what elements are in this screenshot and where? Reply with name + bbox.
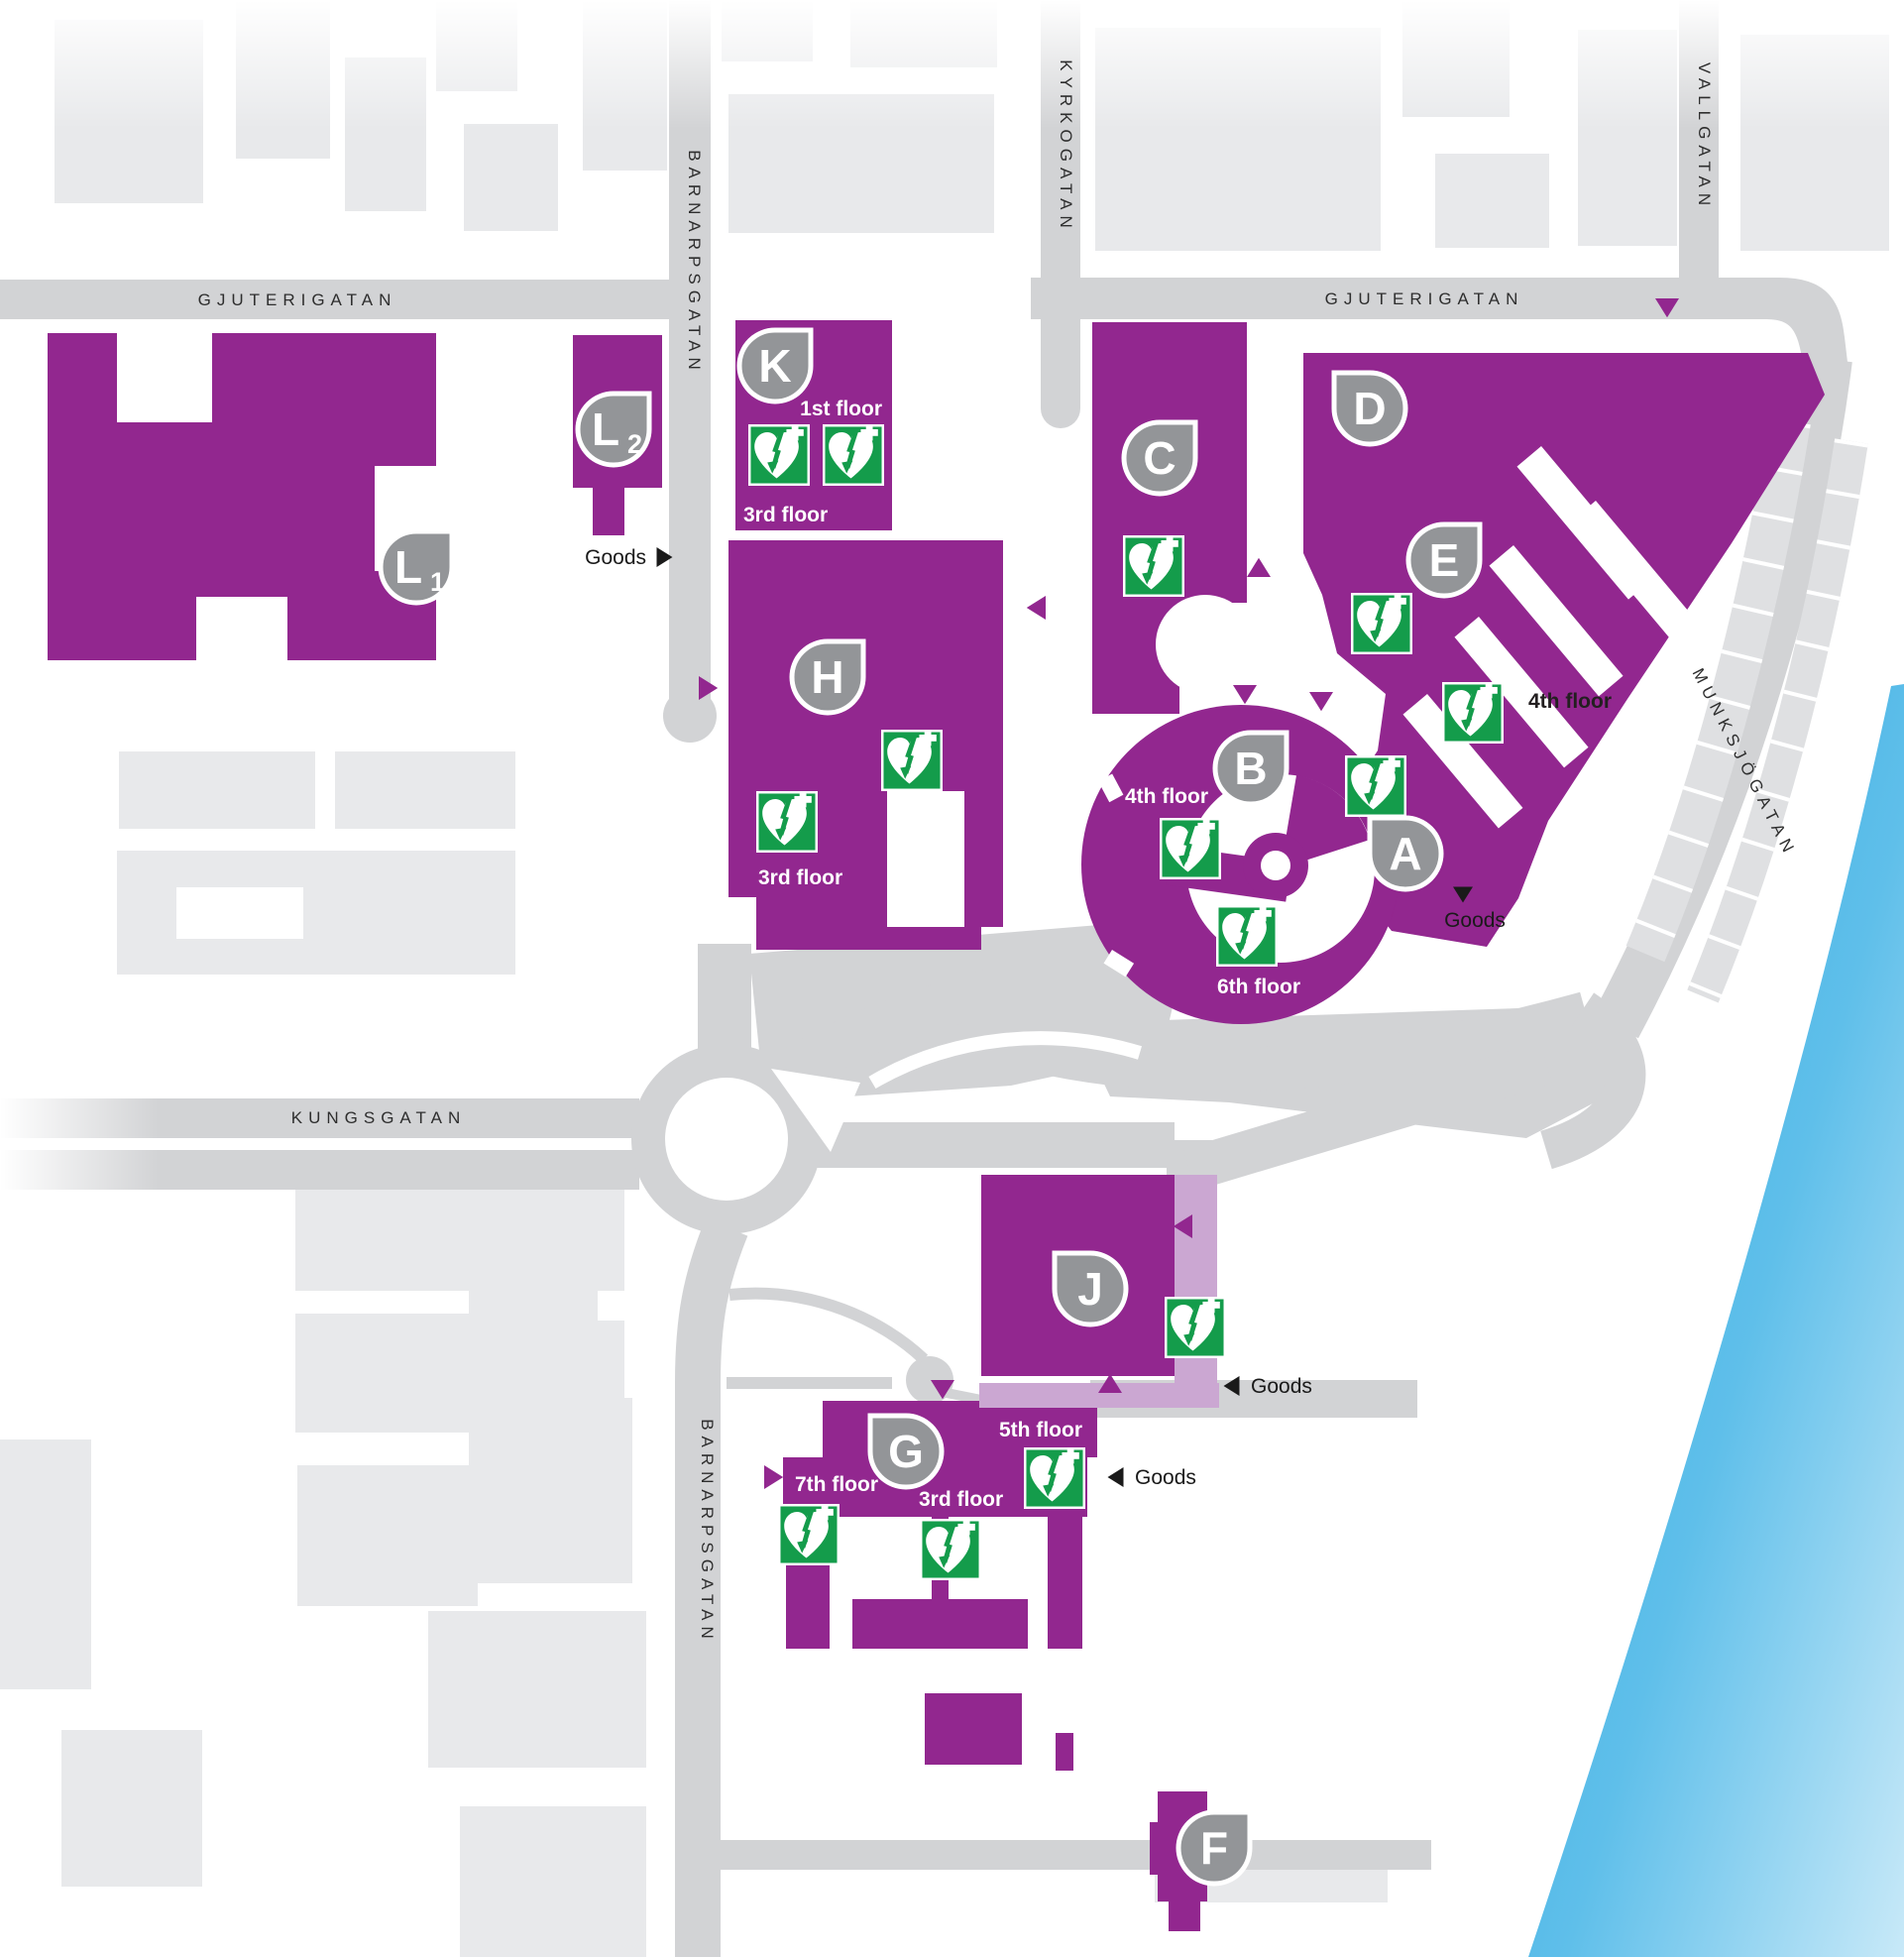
street-label-gjuterigatan-west: GJUTERIGATAN bbox=[198, 290, 397, 309]
aed-b-1 bbox=[1161, 818, 1220, 877]
floor-label: 3rd floor bbox=[758, 866, 842, 889]
floor-label: 5th floor bbox=[999, 1419, 1082, 1441]
svg-text:K: K bbox=[758, 340, 791, 392]
floor-label: 4th floor bbox=[1528, 690, 1612, 713]
goods-arrow-icon bbox=[1108, 1467, 1124, 1487]
entrance-arrow-icon bbox=[764, 1465, 783, 1489]
goods-label: Goods bbox=[1251, 1375, 1312, 1398]
goods-entrance: Goods bbox=[1108, 1466, 1196, 1489]
goods-label: Goods bbox=[1135, 1466, 1196, 1489]
street-label-gjuterigatan-east: GJUTERIGATAN bbox=[1325, 289, 1524, 308]
building-marker-J: J bbox=[1055, 1253, 1126, 1324]
building-marker-K: K bbox=[739, 330, 811, 402]
svg-text:F: F bbox=[1200, 1822, 1228, 1874]
building-marker-E: E bbox=[1408, 524, 1480, 596]
aed-g-7 bbox=[779, 1504, 839, 1563]
floor-label: 1st floor bbox=[800, 398, 882, 420]
water bbox=[1528, 684, 1904, 1957]
floor-label: 6th floor bbox=[1217, 976, 1300, 998]
floor-label: 4th floor bbox=[1125, 785, 1208, 808]
aed-a bbox=[1346, 755, 1405, 815]
svg-text:G: G bbox=[888, 1426, 924, 1477]
svg-text:1: 1 bbox=[430, 567, 445, 597]
aed-j bbox=[1166, 1297, 1225, 1356]
building-marker-G: G bbox=[870, 1416, 942, 1487]
street-label-barnarpsgatan-south: BARNARPSGATAN bbox=[698, 1419, 717, 1645]
svg-text:E: E bbox=[1429, 534, 1460, 586]
left-fade bbox=[0, 1081, 159, 1200]
svg-text:D: D bbox=[1353, 383, 1386, 434]
building-marker-L2: L2 bbox=[578, 394, 649, 465]
aed-k-2 bbox=[824, 424, 883, 484]
building-marker-B: B bbox=[1215, 733, 1287, 804]
aed-k-1 bbox=[749, 424, 809, 484]
street-label-kyrkogatan: KYRKOGATAN bbox=[1057, 59, 1075, 234]
entrance-arrow-icon bbox=[1027, 596, 1046, 620]
map-canvas: GJUTERIGATANGJUTERIGATANBARNARPSGATANKYR… bbox=[0, 0, 1904, 1957]
floor-label: 3rd floor bbox=[919, 1488, 1003, 1511]
street-label-kungsgatan: KUNGSGATAN bbox=[291, 1108, 467, 1127]
building-marker-A: A bbox=[1370, 818, 1441, 889]
building-marker-D: D bbox=[1334, 373, 1405, 444]
entrance-arrow-icon bbox=[1247, 558, 1271, 577]
campus-map: GJUTERIGATANGJUTERIGATANBARNARPSGATANKYR… bbox=[0, 0, 1904, 1957]
goods-label: Goods bbox=[1444, 909, 1506, 932]
building-marker-H: H bbox=[792, 641, 863, 713]
aed-e-2 bbox=[1443, 682, 1503, 742]
building-marker-L1: L1 bbox=[381, 531, 452, 603]
aed-g-5 bbox=[1025, 1447, 1084, 1507]
aed-b-2 bbox=[1217, 905, 1277, 965]
floor-label: 7th floor bbox=[795, 1473, 878, 1496]
svg-text:A: A bbox=[1389, 828, 1421, 879]
aed-e-1 bbox=[1352, 593, 1411, 652]
floor-label: 3rd floor bbox=[743, 504, 828, 526]
street-label-vallgatan: VALLGATAN bbox=[1695, 62, 1714, 211]
svg-text:J: J bbox=[1077, 1263, 1103, 1315]
svg-text:2: 2 bbox=[627, 429, 642, 459]
building-marker-F: F bbox=[1178, 1812, 1250, 1884]
aed-g-3 bbox=[921, 1519, 980, 1578]
top-fade bbox=[0, 0, 1904, 129]
svg-text:H: H bbox=[811, 651, 843, 703]
svg-text:C: C bbox=[1143, 432, 1176, 484]
svg-text:B: B bbox=[1234, 743, 1267, 794]
svg-text:L: L bbox=[394, 541, 422, 593]
building-marker-C: C bbox=[1124, 422, 1195, 494]
aed-h-1 bbox=[882, 730, 942, 789]
entrance-arrow-icon bbox=[1233, 685, 1257, 704]
street-label-barnarpsgatan-north: BARNARPSGATAN bbox=[685, 150, 704, 376]
goods-entrance: Goods bbox=[585, 546, 672, 569]
svg-text:L: L bbox=[592, 403, 619, 455]
goods-label: Goods bbox=[585, 546, 646, 569]
aed-c bbox=[1124, 535, 1183, 595]
aed-h-2 bbox=[757, 791, 817, 851]
building-L1-shape bbox=[48, 333, 436, 660]
entrance-arrow-icon bbox=[1309, 692, 1333, 711]
